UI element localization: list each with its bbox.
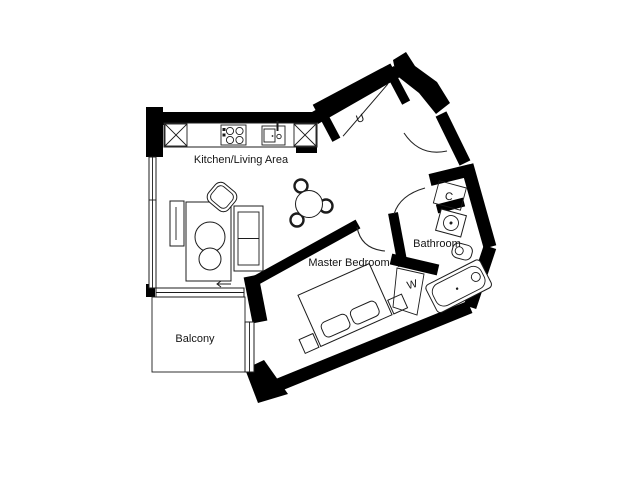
floor-plan-drawing: Kitchen/Living Area Master Bedroom Bathr… bbox=[0, 0, 640, 480]
wall-entry-right-jamb bbox=[441, 114, 465, 163]
door-arcs bbox=[357, 133, 447, 251]
utility-wall-top bbox=[313, 63, 397, 116]
window-bedroom bbox=[245, 322, 254, 372]
utility-closet-walls bbox=[313, 63, 410, 141]
wall-bathroom-right-upper bbox=[467, 165, 490, 247]
sink-dot bbox=[272, 135, 274, 137]
hob-knob-2 bbox=[223, 134, 226, 137]
slider-arrow bbox=[217, 281, 231, 287]
kitchen-counter bbox=[164, 121, 317, 147]
bathroom-door-arc bbox=[394, 188, 425, 214]
label-wardrobe: W bbox=[406, 278, 420, 292]
label-bathroom: Bathroom bbox=[413, 238, 461, 250]
window-balcony-slider bbox=[156, 281, 244, 297]
dining-table bbox=[296, 191, 323, 218]
wall-top-right-blob bbox=[393, 52, 450, 114]
coffee-table bbox=[186, 202, 231, 281]
window-left bbox=[149, 157, 156, 288]
sofa bbox=[234, 206, 263, 271]
dining-set bbox=[291, 180, 333, 227]
wall-living-bedroom-divider bbox=[253, 224, 358, 282]
hob-knob-1 bbox=[223, 128, 226, 131]
round-seat-small bbox=[199, 248, 221, 270]
tv-unit bbox=[170, 201, 184, 246]
label-utility: U bbox=[355, 112, 367, 126]
entry-door-arc bbox=[404, 133, 447, 152]
label-master-bedroom: Master Bedroom bbox=[308, 257, 389, 269]
bedroom-door-arc bbox=[357, 227, 385, 251]
label-balcony: Balcony bbox=[175, 333, 215, 345]
label-kitchen-living: Kitchen/Living Area bbox=[194, 154, 289, 166]
basin bbox=[436, 209, 467, 237]
tv-unit-outline bbox=[170, 201, 184, 246]
floor-plan-canvas: Kitchen/Living Area Master Bedroom Bathr… bbox=[0, 0, 640, 480]
